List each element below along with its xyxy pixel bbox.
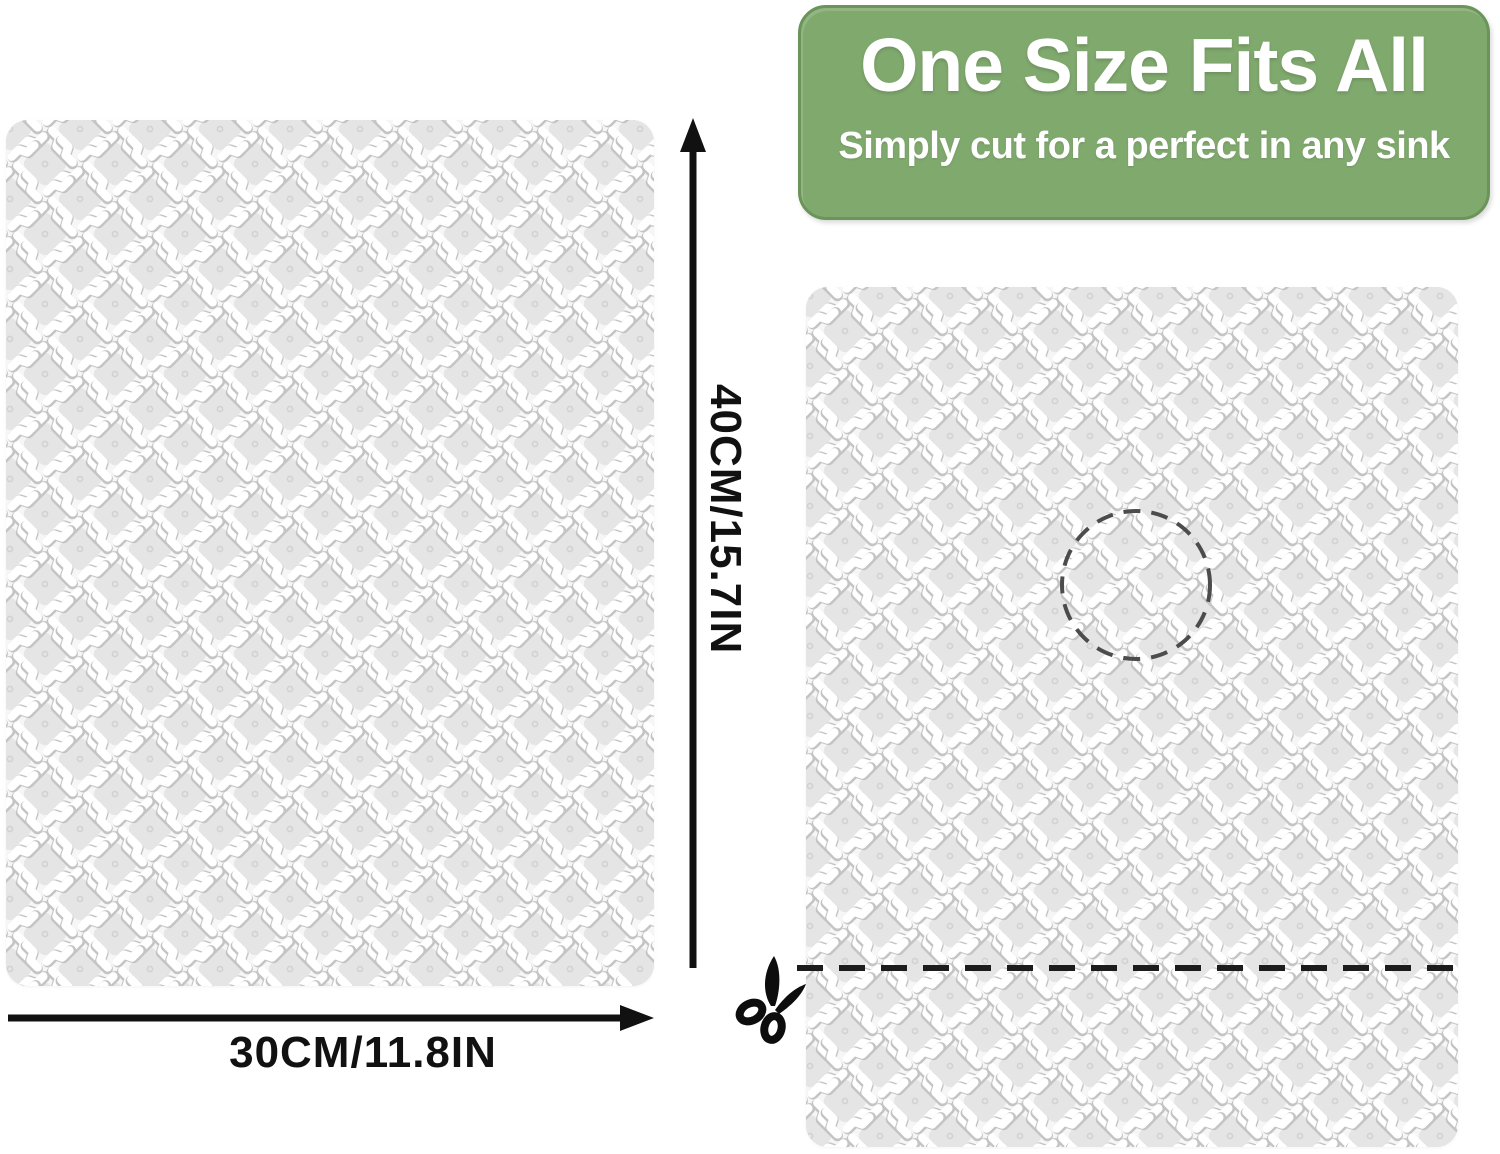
sink-mat-left bbox=[6, 120, 654, 986]
width-dimension-label: 30CM/11.8IN bbox=[153, 1028, 573, 1078]
banner-subtitle: Simply cut for a perfect in any sink bbox=[838, 125, 1449, 168]
scissors-icon bbox=[735, 950, 809, 1046]
banner-title: One Size Fits All bbox=[860, 28, 1428, 103]
drain-cutout-dashed-circle bbox=[1056, 505, 1216, 665]
one-size-banner: One Size Fits All Simply cut for a perfe… bbox=[798, 5, 1490, 220]
sink-mat-right bbox=[806, 287, 1458, 1147]
dashed-cut-line bbox=[797, 965, 1464, 971]
mat-pattern bbox=[6, 120, 654, 986]
height-dimension-label: 40CM/15.7IN bbox=[700, 384, 750, 654]
product-infographic: 40CM/15.7IN 30CM/11.8IN One Size Fits Al… bbox=[0, 0, 1500, 1154]
mat-pattern bbox=[806, 287, 1458, 1147]
